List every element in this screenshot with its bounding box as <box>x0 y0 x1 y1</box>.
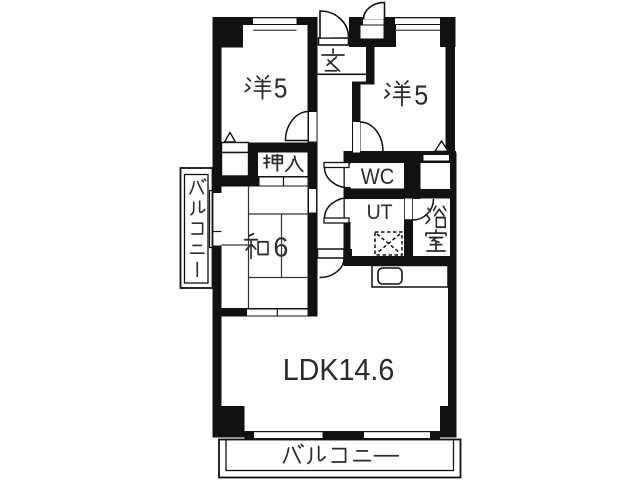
svg-text:5: 5 <box>274 72 288 103</box>
svg-text:6: 6 <box>273 232 288 263</box>
svg-text:WC: WC <box>361 164 395 189</box>
svg-text:5: 5 <box>414 80 428 111</box>
svg-text:LDK14.6: LDK14.6 <box>283 352 395 387</box>
svg-text:UT: UT <box>367 201 393 224</box>
